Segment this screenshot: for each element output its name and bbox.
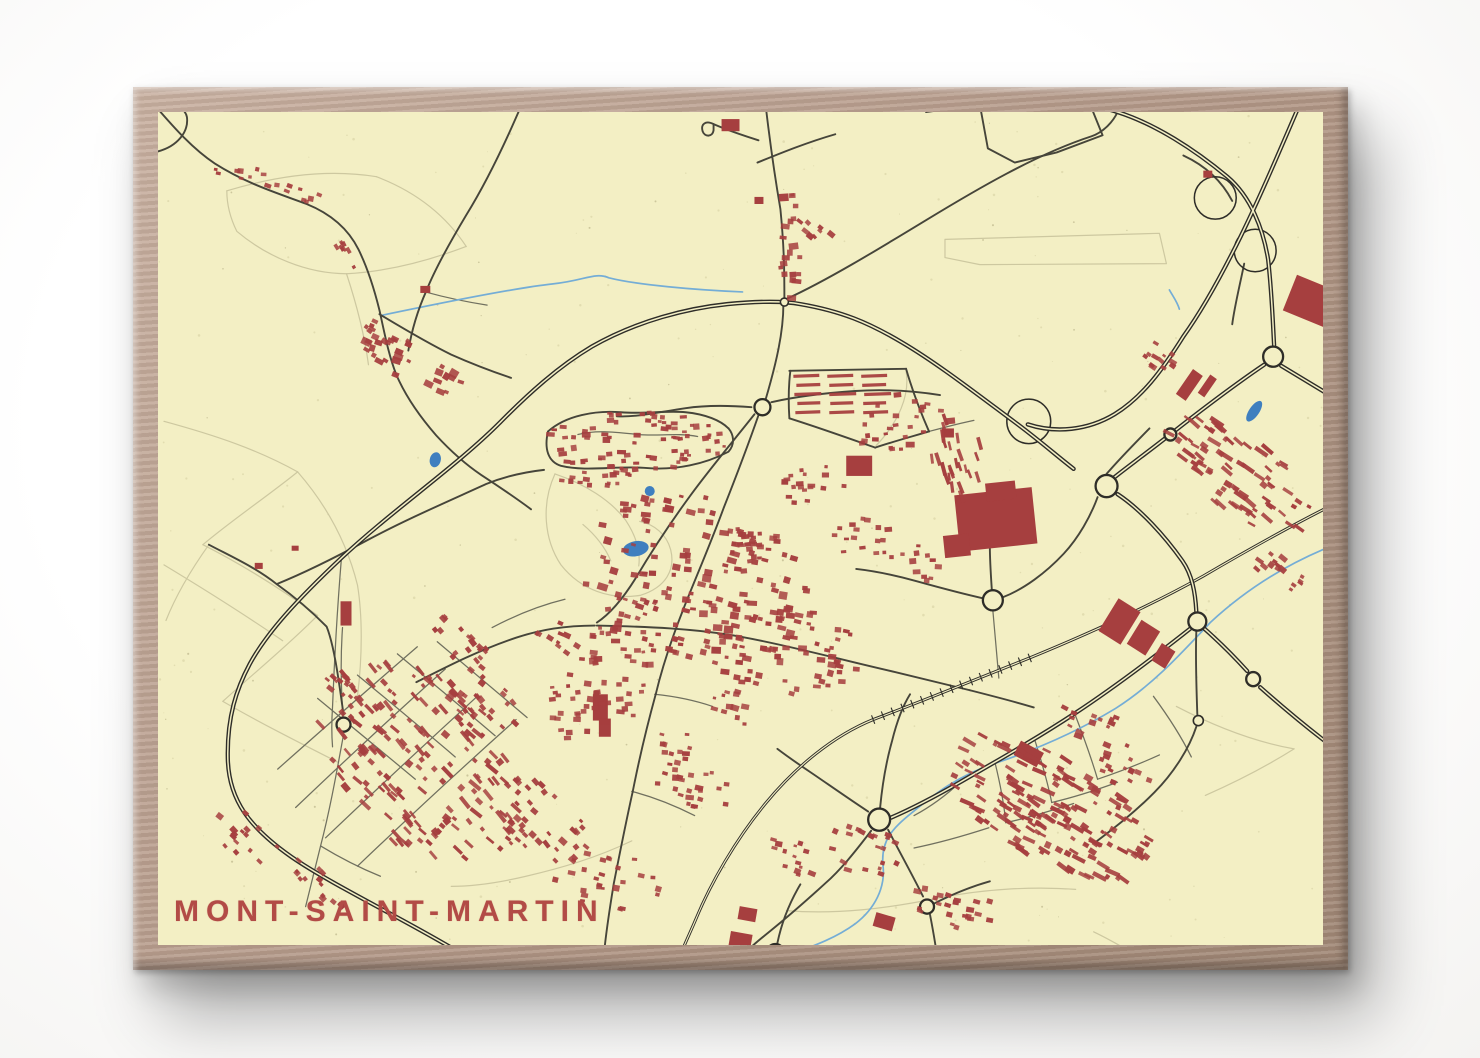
map-svg xyxy=(158,112,1323,945)
map-poster-print: MONT-SAINT-MARTIN xyxy=(158,112,1323,945)
product-photo-scene: MONT-SAINT-MARTIN xyxy=(0,0,1480,1058)
poster-title: MONT-SAINT-MARTIN xyxy=(174,895,605,929)
wooden-picture-frame: MONT-SAINT-MARTIN xyxy=(133,87,1348,970)
frame-inner-bevel: MONT-SAINT-MARTIN xyxy=(158,112,1323,945)
